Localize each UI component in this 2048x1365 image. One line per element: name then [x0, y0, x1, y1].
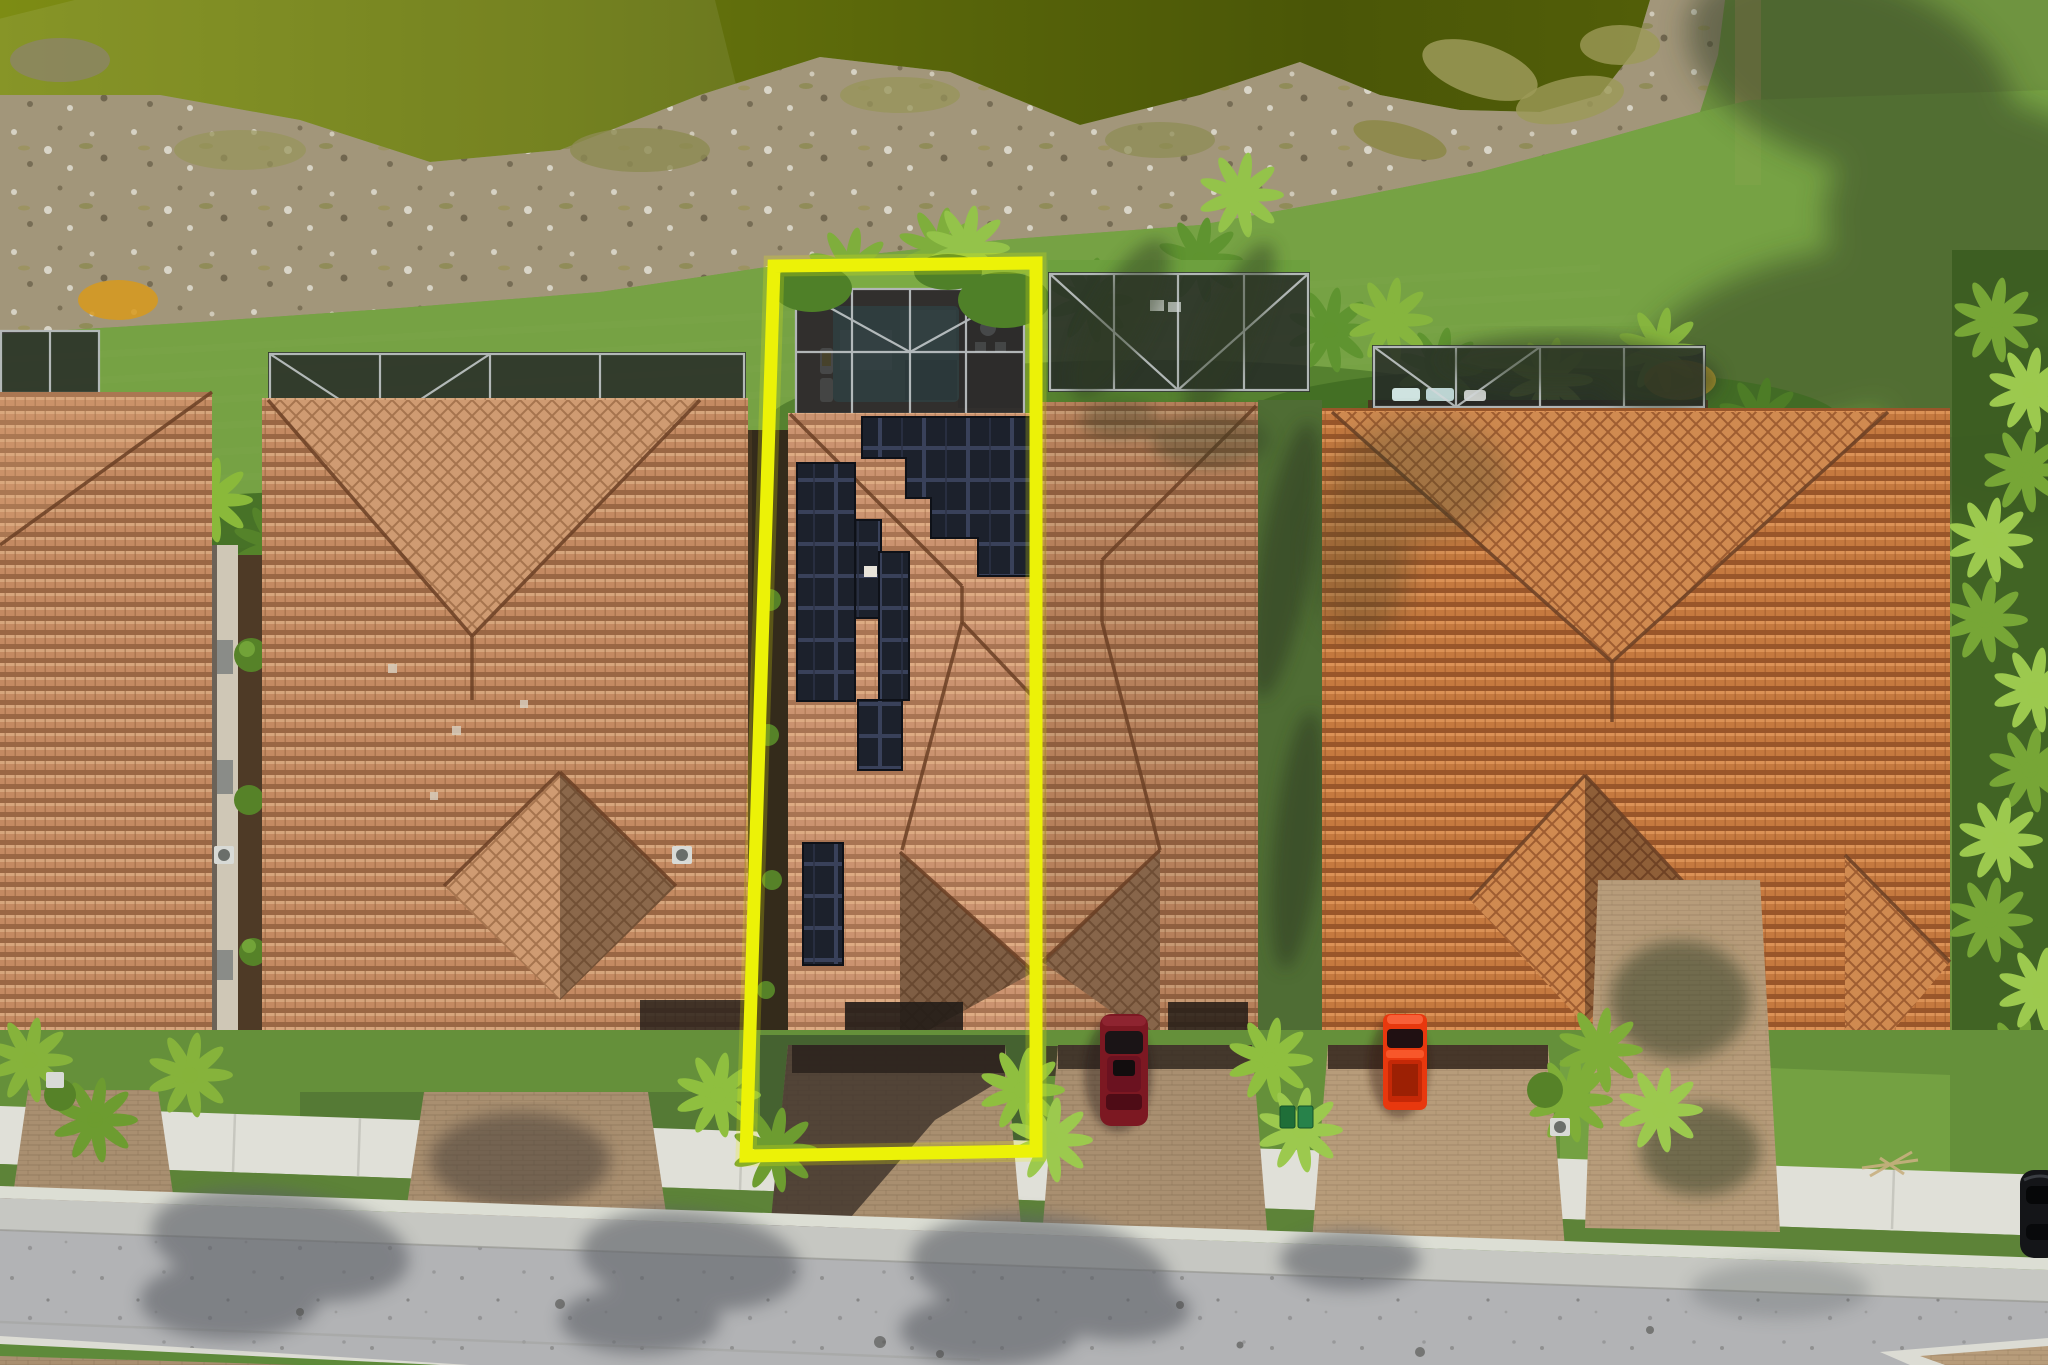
scene-canvas [0, 0, 2048, 1365]
aerial-photo [0, 0, 2048, 1365]
side-strip-left [212, 545, 268, 1103]
roof-left-house [262, 398, 748, 1094]
dark-car [2020, 1170, 2048, 1258]
pool-enclosure-highlighted [772, 254, 1050, 415]
right-edge-vegetation [1942, 250, 2048, 1130]
red-pickup [1369, 1014, 1429, 1118]
pool-cage-partial-left [0, 330, 100, 394]
roof-middle-house [1042, 400, 1270, 1046]
driveway-right-house [1312, 1045, 1565, 1248]
